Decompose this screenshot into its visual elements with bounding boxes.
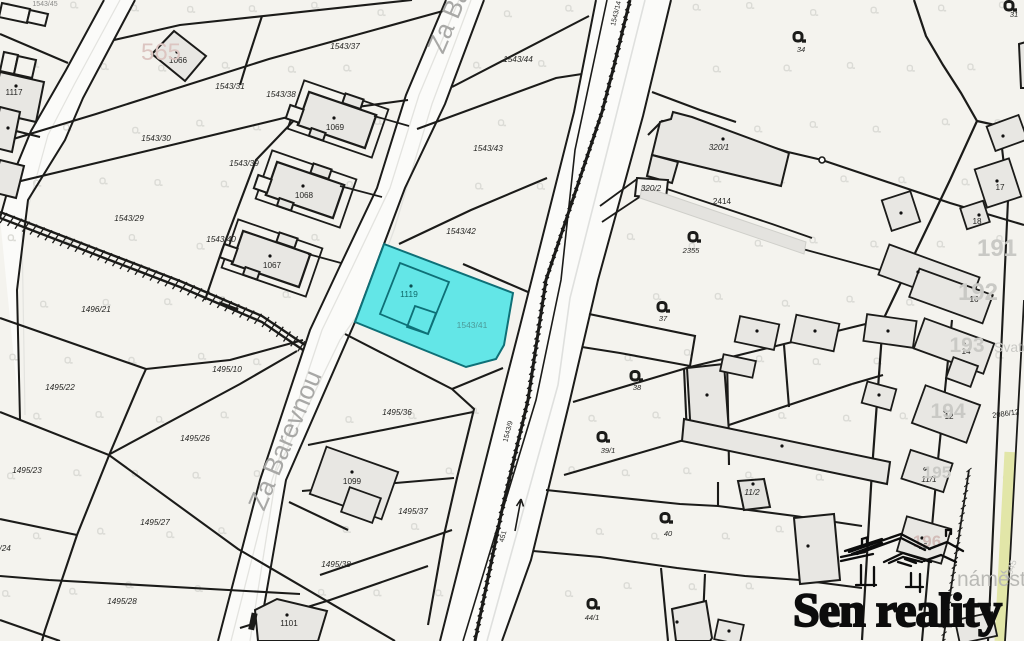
svg-text:1495/10: 1495/10	[212, 365, 242, 374]
svg-text:1543/44: 1543/44	[503, 55, 533, 64]
svg-text:191: 191	[977, 235, 1017, 262]
svg-text:320/1: 320/1	[709, 143, 730, 152]
svg-text:1543/38: 1543/38	[266, 90, 296, 99]
svg-text:1099: 1099	[343, 477, 362, 486]
svg-text:1543/29: 1543/29	[114, 214, 144, 223]
svg-text:192: 192	[958, 279, 998, 306]
svg-text:1495/24: 1495/24	[0, 544, 11, 553]
svg-text:1543/43: 1543/43	[473, 144, 503, 153]
svg-text:1543/37: 1543/37	[330, 42, 360, 51]
svg-text:1495/23: 1495/23	[12, 466, 42, 475]
svg-text:1543/31: 1543/31	[215, 82, 245, 91]
svg-text:1068: 1068	[295, 191, 314, 200]
svg-text:38: 38	[633, 383, 642, 392]
svg-text:1119: 1119	[400, 289, 418, 299]
svg-text:1543/45: 1543/45	[32, 1, 57, 8]
svg-text:1495/26: 1495/26	[180, 434, 210, 443]
svg-text:18: 18	[972, 217, 982, 226]
svg-text:565: 565	[141, 39, 181, 66]
svg-text:37: 37	[659, 314, 668, 323]
svg-text:1496/21: 1496/21	[81, 305, 111, 314]
svg-text:Sen reality: Sen reality	[793, 584, 1002, 637]
svg-text:195: 195	[923, 463, 951, 482]
svg-text:1117: 1117	[6, 88, 23, 97]
svg-text:1495/28: 1495/28	[107, 597, 137, 606]
svg-text:Svatova: Svatova	[994, 339, 1024, 355]
svg-text:320/2: 320/2	[641, 184, 662, 193]
svg-text:39/1: 39/1	[601, 446, 616, 455]
svg-text:44/1: 44/1	[585, 613, 600, 622]
svg-text:1543/40: 1543/40	[206, 235, 236, 244]
svg-text:1495/36: 1495/36	[382, 408, 412, 417]
svg-text:193: 193	[949, 334, 984, 357]
svg-text:40: 40	[664, 529, 673, 538]
svg-text:1067: 1067	[263, 261, 282, 270]
svg-text:1069: 1069	[326, 123, 345, 132]
svg-text:1543/39: 1543/39	[229, 159, 259, 168]
svg-text:1101: 1101	[280, 619, 298, 628]
svg-text:1543/42: 1543/42	[446, 227, 476, 236]
svg-text:1495/22: 1495/22	[45, 383, 75, 392]
svg-text:1495/27: 1495/27	[140, 518, 170, 527]
svg-text:1543/30: 1543/30	[141, 134, 171, 143]
svg-text:194: 194	[930, 400, 965, 423]
svg-text:2414: 2414	[713, 197, 732, 206]
svg-text:1495/37: 1495/37	[398, 507, 428, 516]
svg-text:2355: 2355	[682, 246, 701, 255]
svg-text:34: 34	[797, 45, 805, 54]
svg-text:17: 17	[995, 183, 1005, 192]
svg-text:1495/38: 1495/38	[321, 560, 351, 569]
svg-text:11/2: 11/2	[744, 488, 760, 497]
svg-text:1543/41: 1543/41	[457, 320, 488, 330]
